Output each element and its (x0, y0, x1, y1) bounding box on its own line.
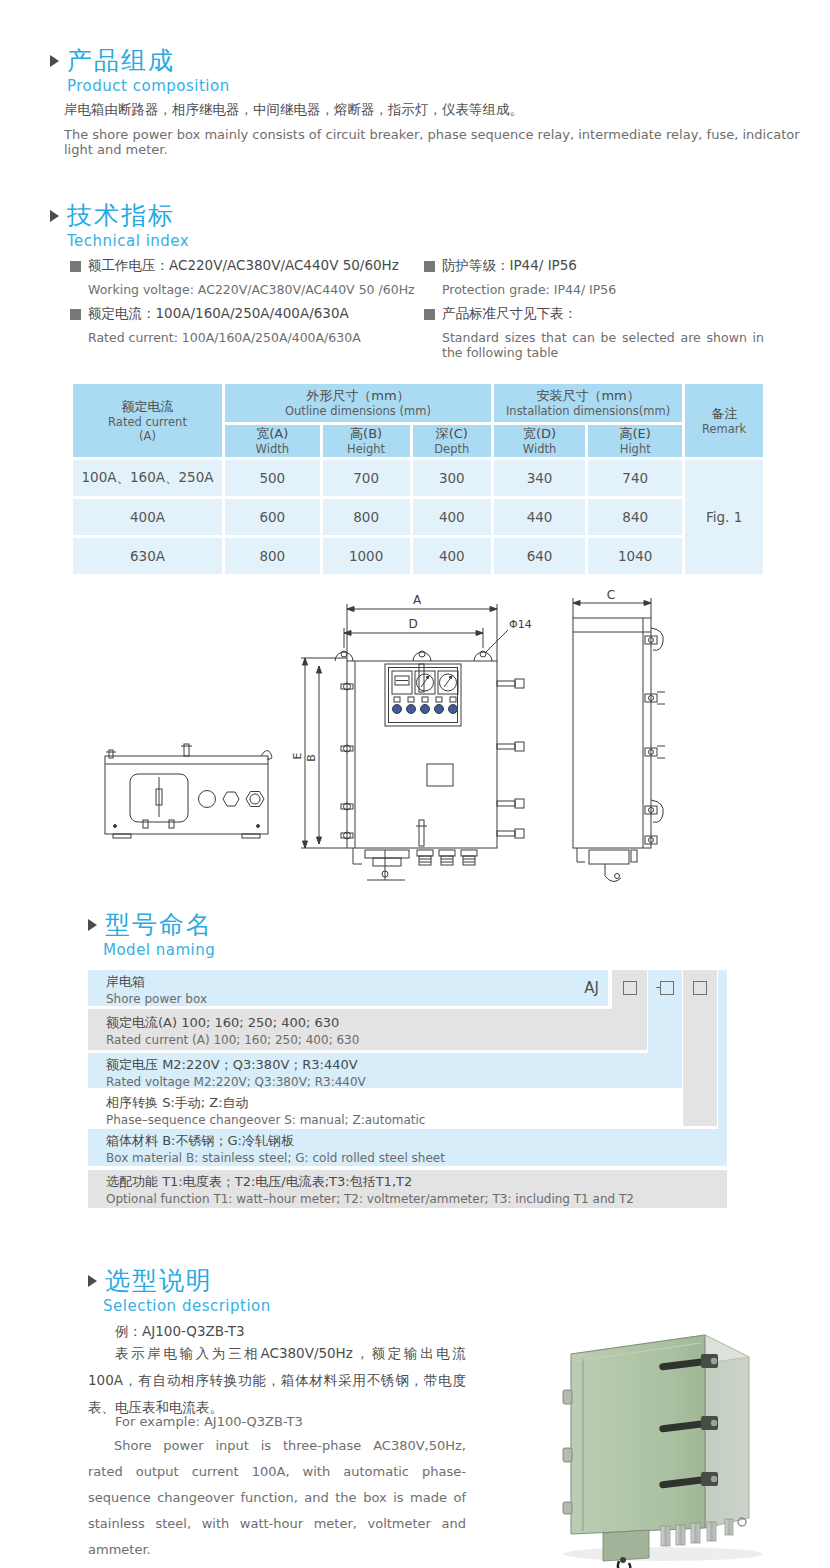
section-arrow-icon (50, 55, 59, 67)
composition-body-cn: 岸电箱由断路器，相序继电器，中间继电器，熔断器，指示灯，仪表等组成。 (64, 101, 784, 119)
cell-width-d: 440 (494, 499, 585, 535)
code-prefix: AJ (584, 979, 599, 997)
table-row: 400A 600 800 400 440 840 (73, 499, 763, 535)
ladder-row-box-material: 箱体材料 B:不锈钢；G:冷轧钢板 Box material B: stainl… (88, 1129, 727, 1166)
outline-drawing: A D Φ14 E B C (65, 588, 765, 888)
dim-label-a: A (413, 593, 422, 607)
header-unit: (A) (73, 429, 222, 443)
cell-depth-c: 400 (413, 499, 491, 535)
cell-width-a: 800 (225, 538, 320, 574)
cell-width-a: 500 (225, 460, 320, 496)
bullet-square-icon (70, 261, 81, 272)
subheader-cn: 高(B) (323, 426, 410, 442)
row-en: Optional function T1: watt–hour meter; T… (88, 1190, 727, 1207)
section-title-en: Selection description (103, 1297, 271, 1315)
dim-label-e: E (291, 752, 304, 759)
section-selection-description-header: 选型说明 (88, 1268, 213, 1293)
cell-height-b: 700 (323, 460, 410, 496)
dim-label-d: D (408, 617, 417, 631)
code-box-icon (660, 981, 674, 995)
catalog-page: 产品组成 Product composition 岸电箱由断路器，相序继电器，中… (0, 0, 830, 1568)
subheader-en: Depth (413, 442, 491, 456)
subheader-en: Hight (588, 442, 682, 456)
section-product-composition-header: 产品组成 (50, 48, 175, 73)
ladder-row-phase-sequence: 相序转换 S:手动; Z:自动 Phase–sequence changeove… (88, 1091, 717, 1126)
section-model-naming-header: 型号命名 (88, 912, 213, 937)
row-cn: 相序转换 S:手动; Z:自动 (88, 1091, 717, 1111)
section-arrow-icon (88, 919, 97, 931)
table-row: 100A、160A、250A 500 700 300 340 740 Fig. … (73, 460, 763, 496)
subheader-cn: 宽(A) (225, 426, 320, 442)
ladder-row-shore-power-box: 岸电箱 Shore power box AJ (88, 970, 608, 1006)
section-title-cn: 技术指标 (67, 203, 175, 228)
code-box-icon (623, 981, 637, 995)
cell-depth-c: 300 (413, 460, 491, 496)
spec-en: Working voltage: AC220V/AC380V/AC440V 50… (88, 282, 420, 297)
header-cn: 外形尺寸（mm） (225, 388, 491, 404)
cell-current: 100A、160A、250A (73, 460, 222, 496)
section-title-cn: 选型说明 (105, 1268, 213, 1293)
product-photo-green-enclosure (545, 1312, 813, 1568)
section-title-en: Technical index (67, 232, 189, 250)
ladder-row-rated-voltage: 额定电压 M2:220V；Q3:380V；R3:440V Rated volta… (88, 1053, 682, 1088)
bullet-square-icon (70, 309, 81, 320)
table-subheader-height-e: 高(E)Hight (588, 425, 682, 457)
header-en: Remark (685, 422, 763, 436)
spec-en: Protection grade: IP44/ IP56 (442, 282, 764, 297)
section-arrow-icon (50, 210, 59, 222)
subheader-en: Height (323, 442, 410, 456)
row-cn: 选配功能 T1:电度表；T2:电压/电流表;T3:包括T1,T2 (88, 1170, 727, 1190)
cell-height-b: 800 (323, 499, 410, 535)
section-title-en: Product composition (67, 77, 230, 95)
section-arrow-icon (88, 1275, 97, 1287)
table-header-install-dims: 安装尺寸（mm） Installation dimensions(mm) (494, 384, 682, 422)
spec-working-voltage: 额工作电压：AC220V/AC380V/AC440V 50/60Hz Worki… (70, 257, 420, 297)
subheader-cn: 宽(D) (494, 426, 585, 442)
cell-height-b: 1000 (323, 538, 410, 574)
spec-en: Rated current: 100A/160A/250A/400A/630A (88, 330, 420, 345)
table-subheader-width-a: 宽(A)Width (225, 425, 320, 457)
header-en: Rated current (73, 415, 222, 429)
header-en: Installation dimensions(mm) (494, 404, 682, 418)
table-row: 630A 800 1000 400 640 1040 (73, 538, 763, 574)
cell-width-d: 640 (494, 538, 585, 574)
dimensions-table: 额定电流 Rated current (A) 外形尺寸（mm） Outline … (70, 381, 766, 577)
model-naming-ladder: - 岸电箱 Shore power box AJ 额定电流(A) 100; 16… (88, 970, 727, 1208)
row-cn: 箱体材料 B:不锈钢；G:冷轧钢板 (88, 1129, 727, 1149)
code-box-icon (693, 981, 707, 995)
cell-current: 630A (73, 538, 222, 574)
cell-width-a: 600 (225, 499, 320, 535)
spec-rated-current: 额定电流：100A/160A/250A/400A/630A Rated curr… (70, 305, 420, 345)
bullet-square-icon (424, 309, 435, 320)
spec-cn: 产品标准尺寸见下表： (442, 305, 577, 323)
spec-cn: 额定电流：100A/160A/250A/400A/630A (88, 305, 349, 323)
cell-height-e: 1040 (588, 538, 682, 574)
table-header-outline-dims: 外形尺寸（mm） Outline dimensions (mm) (225, 384, 491, 422)
subheader-cn: 深(C) (413, 426, 491, 442)
cell-height-e: 840 (588, 499, 682, 535)
cell-depth-c: 400 (413, 538, 491, 574)
table-subheader-height-b: 高(B)Height (323, 425, 410, 457)
cell-current: 400A (73, 499, 222, 535)
spec-en: Standard sizes that can be selected are … (442, 330, 764, 360)
table-subheader-width-d: 宽(D)Width (494, 425, 585, 457)
bullet-square-icon (424, 261, 435, 272)
section-technical-index-header: 技术指标 (50, 203, 175, 228)
dim-label-b: B (305, 754, 318, 762)
selection-body-en: Shore power input is three-phase AC380V,… (88, 1433, 466, 1563)
spec-protection-grade: 防护等级：IP44/ IP56 Protection grade: IP44/ … (424, 257, 764, 297)
composition-body-en: The shore power box mainly consists of c… (64, 127, 804, 157)
row-en: Box material B: stainless steel; G: cold… (88, 1149, 727, 1166)
subheader-en: Width (225, 442, 320, 456)
header-cn: 额定电流 (73, 399, 222, 415)
ladder-row-optional-function: 选配功能 T1:电度表；T2:电压/电流表;T3:包括T1,T2 Optiona… (88, 1170, 727, 1208)
header-en: Outline dimensions (mm) (225, 404, 491, 418)
dim-label-phi14: Φ14 (509, 618, 532, 631)
spec-standard-sizes: 产品标准尺寸见下表： Standard sizes that can be se… (424, 305, 764, 360)
dim-label-c: C (607, 588, 615, 602)
row-cn: 岸电箱 (88, 970, 608, 990)
row-en: Phase–sequence changeover S: manual; Z:a… (88, 1111, 717, 1128)
header-cn: 安装尺寸（mm） (494, 388, 682, 404)
subheader-en: Width (494, 442, 585, 456)
subheader-cn: 高(E) (588, 426, 682, 442)
cell-remark: Fig. 1 (685, 460, 763, 574)
section-title-cn: 产品组成 (67, 48, 175, 73)
row-en: Rated voltage M2:220V; Q3:380V; R3:440V (88, 1073, 682, 1090)
table-subheader-depth-c: 深(C)Depth (413, 425, 491, 457)
row-cn: 额定电流(A) 100; 160; 250; 400; 630 (88, 1009, 647, 1031)
header-cn: 备注 (685, 406, 763, 422)
selection-example-en: For example: AJ100-Q3ZB-T3 (115, 1409, 475, 1435)
table-header-rated-current: 额定电流 Rated current (A) (73, 384, 222, 457)
table-header-remark: 备注 Remark (685, 384, 763, 457)
ladder-row-rated-current: 额定电流(A) 100; 160; 250; 400; 630 Rated cu… (88, 1009, 647, 1050)
section-title-cn: 型号命名 (105, 912, 213, 937)
spec-cn: 防护等级：IP44/ IP56 (442, 257, 577, 275)
row-en: Rated current (A) 100; 160; 250; 400; 63… (88, 1031, 647, 1048)
cell-width-d: 340 (494, 460, 585, 496)
row-en: Shore power box (88, 990, 608, 1007)
section-title-en: Model naming (103, 941, 215, 959)
cell-height-e: 740 (588, 460, 682, 496)
row-cn: 额定电压 M2:220V；Q3:380V；R3:440V (88, 1053, 682, 1073)
spec-cn: 额工作电压：AC220V/AC380V/AC440V 50/60Hz (88, 257, 399, 275)
